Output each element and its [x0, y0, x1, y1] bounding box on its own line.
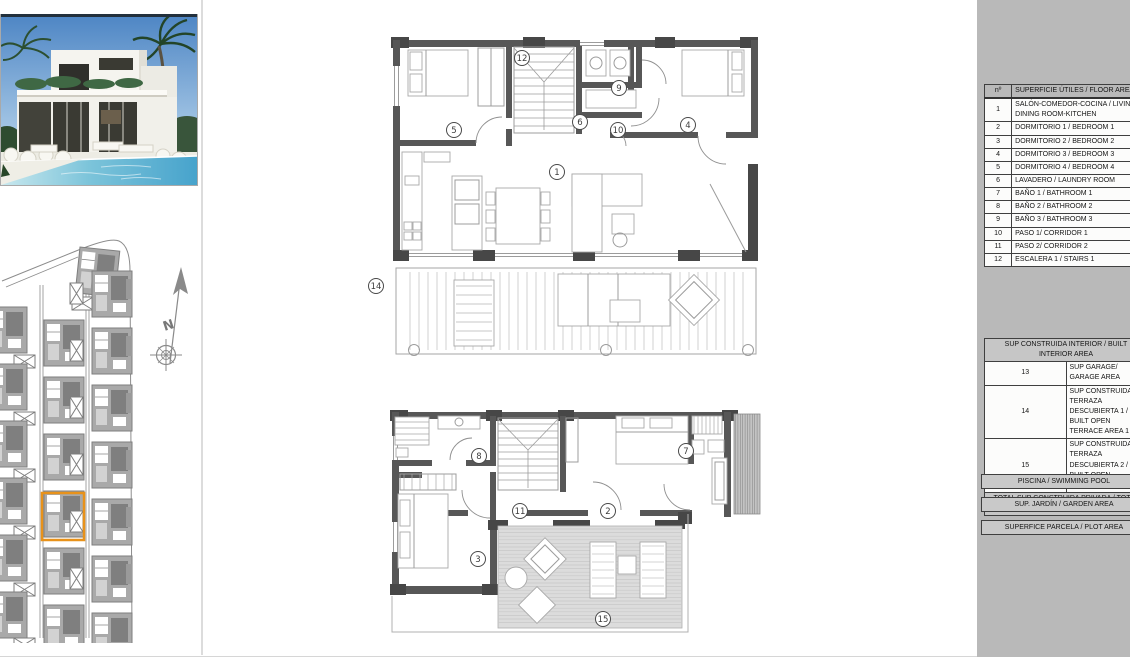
- svg-text:2: 2: [605, 507, 610, 517]
- room-label-15: 15: [596, 612, 611, 627]
- table-row: 7BAÑO 1 / BATHROOM 1: [985, 188, 1130, 201]
- table-row: 3DORMITORIO 2 / BEDROOM 2: [985, 135, 1130, 148]
- table-row: 13SUP GARAGE/ GARAGE AREA: [985, 362, 1130, 385]
- bathroom-2-furniture: [395, 416, 480, 460]
- bedroom-3-furniture: [631, 50, 744, 164]
- site-plan: N: [0, 233, 200, 643]
- stairs: [498, 418, 558, 490]
- table-row: 11PASO 2/ CORRIDOR 2: [985, 240, 1130, 253]
- table-row: 12ESCALERA 1 / STAIRS 1: [985, 253, 1130, 266]
- room-label-12: 12: [515, 51, 530, 66]
- table-row: 2DORMITORIO 1 / BEDROOM 1: [985, 122, 1130, 135]
- room-label-3: 3: [471, 552, 486, 567]
- villa-render-photo: [0, 14, 198, 186]
- floor-plan-upper: 12 9 5 6 10 4 1 14: [358, 24, 770, 364]
- room-label-2: 2: [601, 504, 616, 519]
- col-label-header: SUPERFICIE ÚTILES / FLOOR AREA: [1012, 85, 1130, 99]
- room-label-10: 10: [611, 123, 626, 138]
- table-row: 8BAÑO 2 / BATHROOM 2: [985, 201, 1130, 214]
- laundry-bath-core: [586, 50, 666, 146]
- room-label-1: 1: [550, 165, 565, 180]
- svg-text:1: 1: [554, 168, 559, 178]
- pool-row: PISCINA / SWIMMING POOL: [981, 474, 1130, 489]
- section-header-row: SUP CONSTRUIDA INTERIOR / BUILT INTERIOR…: [985, 339, 1130, 362]
- room-label-11: 11: [513, 504, 528, 519]
- col-number-header: nº: [985, 85, 1012, 99]
- svg-text:3: 3: [475, 555, 480, 565]
- bedroom-1-furniture: [566, 416, 688, 510]
- room-label-14: 14: [369, 279, 384, 294]
- area-table: nº SUPERFICIE ÚTILES / FLOOR AREA 1SALÓN…: [984, 84, 1130, 267]
- room-label-6: 6: [573, 115, 588, 130]
- svg-text:5: 5: [451, 126, 456, 136]
- table-row: 5DORMITORIO 4 / BEDROOM 4: [985, 161, 1130, 174]
- terrace-upper: [396, 268, 756, 356]
- sheet-bottom-rule: [0, 656, 1130, 657]
- svg-text:14: 14: [371, 282, 382, 292]
- room-label-9: 9: [612, 81, 627, 96]
- svg-text:8: 8: [476, 452, 481, 462]
- table-row: 14SUP CONSTRUIDA TERRAZA DESCUBIERTA 1 /…: [985, 385, 1130, 439]
- pergola-hatch: [734, 414, 760, 514]
- room-label-7: 7: [679, 444, 694, 459]
- kitchen-living-furniture: [402, 152, 758, 254]
- table-row: 6LAVADERO / LAUNDRY ROOM: [985, 174, 1130, 187]
- svg-text:9: 9: [616, 84, 621, 94]
- svg-text:7: 7: [683, 447, 688, 457]
- room-label-4: 4: [681, 118, 696, 133]
- svg-text:11: 11: [515, 507, 526, 517]
- north-arrow-icon: N: [150, 267, 188, 371]
- table-row: 1SALÓN-COMEDOR-COCINA / LIVING-DINING RO…: [985, 98, 1130, 122]
- plot-row: SUPERFICE PARCELA / PLOT AREA: [981, 520, 1130, 535]
- parcel-houses: [0, 247, 132, 643]
- area-legend-panel: nº SUPERFICIE ÚTILES / FLOOR AREA 1SALÓN…: [977, 0, 1130, 657]
- svg-text:15: 15: [598, 615, 609, 625]
- svg-text:6: 6: [577, 118, 582, 128]
- table-row: 4DORMITORIO 3 / BEDROOM 3: [985, 148, 1130, 161]
- svg-text:4: 4: [685, 121, 690, 131]
- plan-sheet: N: [0, 0, 1130, 665]
- table-row: 10PASO 1/ CORRIDOR 1: [985, 227, 1130, 240]
- room-label-5: 5: [447, 123, 462, 138]
- svg-text:12: 12: [517, 54, 528, 64]
- garden-row: SUP. JARDÍN / GARDEN AREA: [981, 497, 1130, 512]
- table-row: 9BAÑO 3 / BATHROOM 3: [985, 214, 1130, 227]
- column-divider: [201, 0, 203, 655]
- built-area-table: SUP CONSTRUIDA INTERIOR / BUILT INTERIOR…: [984, 338, 1130, 516]
- floor-plan-lower: 8 7 11 2 3 15: [378, 402, 770, 642]
- svg-text:10: 10: [613, 126, 624, 136]
- svg-text:N: N: [161, 317, 176, 335]
- area-table-header: nº SUPERFICIE ÚTILES / FLOOR AREA: [985, 85, 1130, 99]
- room-label-8: 8: [472, 449, 487, 464]
